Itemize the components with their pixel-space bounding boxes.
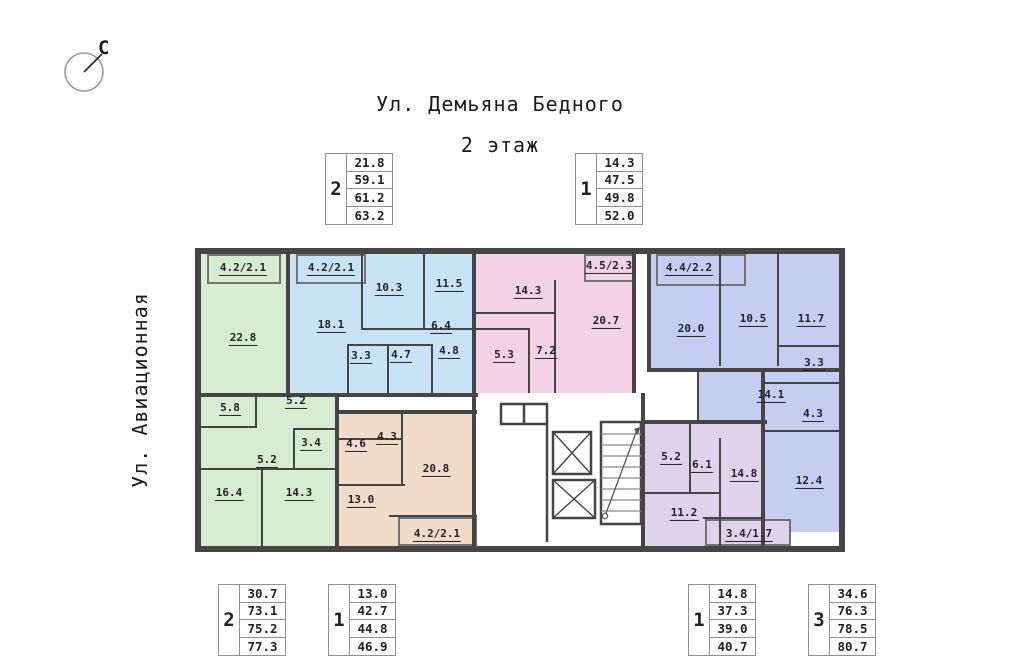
wall [361, 254, 363, 330]
wall [431, 344, 433, 393]
room-area-label: 20.0 [677, 323, 706, 337]
wall [335, 414, 339, 546]
room-count-number: 3 [809, 585, 830, 655]
room-area-label: 4.3 [376, 431, 398, 445]
wall [347, 344, 433, 346]
room-count-number: 2 [326, 154, 347, 224]
wall [423, 254, 425, 330]
wall [647, 254, 651, 368]
room-area-label: 4.6 [345, 438, 367, 452]
room-area-label: 20.7 [592, 315, 621, 329]
room-count-number: 2 [219, 585, 240, 655]
wall [703, 517, 765, 519]
wall [401, 414, 403, 486]
area-value: 77.3 [240, 638, 285, 656]
room-area-label: 3.3 [350, 350, 372, 364]
wall [554, 280, 556, 393]
room-area-label: 4.2/2.1 [219, 262, 267, 276]
room-area-label: 10.5 [739, 313, 768, 327]
wall [335, 410, 477, 414]
wall [779, 345, 839, 347]
room-area-label: 5.2 [285, 395, 307, 409]
room-area-label: 5.2 [660, 451, 682, 465]
room-area-label: 11.7 [797, 313, 826, 327]
room-area-label: 11.5 [435, 278, 464, 292]
room-area-label: 14.1 [757, 389, 786, 403]
wall [335, 393, 339, 410]
room-count-number: 1 [576, 154, 597, 224]
room-area-label: 6.1 [691, 459, 713, 473]
wall [472, 254, 476, 393]
wall [387, 344, 389, 393]
area-value: 63.2 [347, 207, 392, 225]
wall [528, 330, 530, 393]
area-value: 21.8 [347, 154, 392, 172]
room-area-label: 4.3 [802, 408, 824, 422]
room-area-label: 14.8 [730, 468, 759, 482]
room-count-number: 1 [329, 585, 350, 655]
room-area-label: 11.2 [670, 507, 699, 521]
area-value: 40.7 [710, 638, 755, 656]
room-area-label: 3.4/1.7 [725, 528, 773, 542]
room-area-label: 14.3 [514, 285, 543, 299]
room-area-label: 6.4 [430, 320, 452, 334]
room-area-label: 4.8 [438, 345, 460, 359]
room-area-label: 5.3 [493, 349, 515, 363]
street-name-top: Ул. Демьяна Бедного [300, 92, 700, 116]
wall [201, 426, 257, 428]
area-value: 80.7 [830, 638, 875, 656]
wall [697, 368, 699, 420]
room-area-label: 3.4 [300, 437, 322, 451]
wall [645, 492, 721, 494]
apartment-summary-box: 113.042.744.846.9 [328, 584, 396, 656]
wall [361, 328, 474, 330]
apartment-summary-box: 114.347.549.852.0 [575, 153, 643, 225]
room-area-label: 14.3 [285, 487, 314, 501]
wall [201, 468, 335, 470]
room-area-label: 20.8 [422, 463, 451, 477]
wall [347, 344, 349, 393]
room-area-label: 4.2/2.1 [413, 528, 461, 542]
area-value: 61.2 [347, 189, 392, 207]
wall [255, 393, 257, 428]
room-area-label: 4.5/2.3 [585, 260, 633, 274]
wall [761, 382, 839, 384]
compass-letter: С [98, 37, 109, 59]
area-value: 46.9 [350, 638, 395, 656]
room-area-label: 4.2/2.1 [307, 262, 355, 276]
apartment-summary-box: 230.773.175.277.3 [218, 584, 286, 656]
apartment-summary-box: 114.837.339.040.7 [688, 584, 756, 656]
room-area-label: 12.4 [795, 475, 824, 489]
area-value: 14.3 [597, 154, 642, 172]
compass-north-icon: С [52, 30, 132, 110]
floor-plan: 4.2/2.122.85.85.23.45.216.414.34.2/2.118… [195, 248, 845, 552]
wall [689, 420, 691, 494]
apartment-summary-box: 334.676.378.580.7 [808, 584, 876, 656]
area-value: 34.6 [830, 585, 875, 603]
wall [777, 254, 779, 366]
area-value: 13.0 [350, 585, 395, 603]
wall [632, 254, 636, 393]
area-value: 39.0 [710, 620, 755, 638]
room-area-label: 3.3 [803, 357, 825, 371]
room-area-label: 10.3 [375, 282, 404, 296]
wall [476, 312, 554, 314]
area-value: 44.8 [350, 620, 395, 638]
area-value: 14.8 [710, 585, 755, 603]
area-value: 73.1 [240, 603, 285, 621]
room-area-label: 4.4/2.2 [665, 262, 713, 276]
area-value: 42.7 [350, 603, 395, 621]
area-value: 30.7 [240, 585, 285, 603]
area-value: 49.8 [597, 189, 642, 207]
room-area-label: 5.8 [219, 402, 241, 416]
wall [201, 393, 478, 397]
area-value: 52.0 [597, 207, 642, 225]
wall [293, 428, 295, 468]
area-value: 47.5 [597, 172, 642, 190]
room-area-label: 18.1 [317, 319, 346, 333]
wall [286, 254, 290, 393]
wall [476, 328, 530, 330]
wall [719, 254, 721, 366]
wall [389, 515, 477, 517]
wall [293, 428, 335, 430]
room-area-label: 13.0 [347, 494, 376, 508]
wall [261, 470, 263, 546]
room-count-number: 1 [689, 585, 710, 655]
wall [641, 393, 645, 546]
wall [335, 484, 405, 486]
wall [472, 393, 476, 546]
area-value: 76.3 [830, 603, 875, 621]
room-area-label: 5.2 [256, 454, 278, 468]
street-name-left: Ул. Авиационная [128, 292, 152, 488]
room-area-label: 7.2 [535, 345, 557, 359]
floorplan-page: С Ул. Демьяна Бедного 2 этаж Ул. Авиацио… [0, 0, 1024, 659]
area-value: 78.5 [830, 620, 875, 638]
apartment-summary-box: 221.859.161.263.2 [325, 153, 393, 225]
area-value: 75.2 [240, 620, 285, 638]
room-area-label: 4.7 [390, 349, 412, 363]
wall [645, 420, 767, 424]
wall [761, 430, 839, 432]
area-value: 37.3 [710, 603, 755, 621]
room-area-label: 22.8 [229, 332, 258, 346]
room-area-label: 16.4 [215, 487, 244, 501]
area-value: 59.1 [347, 172, 392, 190]
